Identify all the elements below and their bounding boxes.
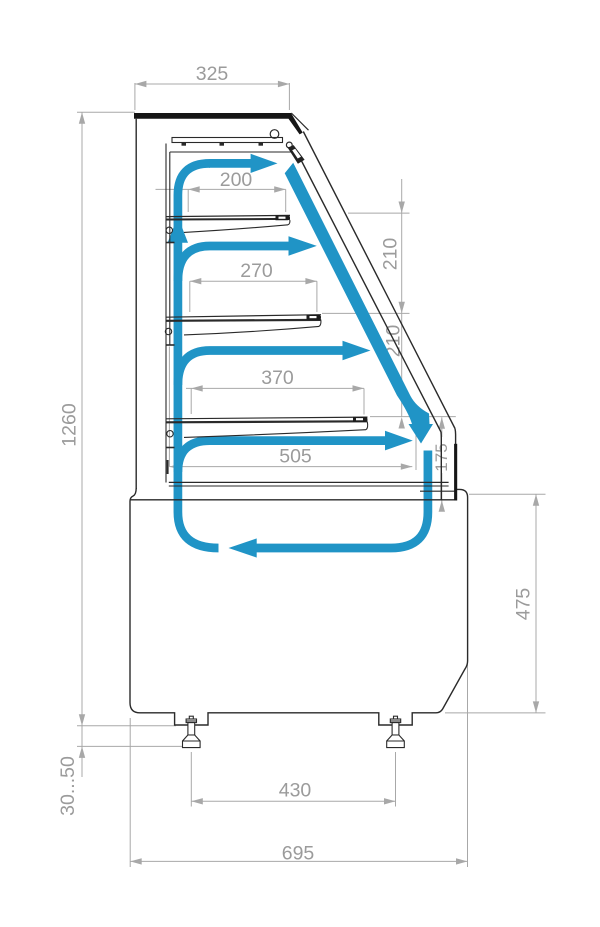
svg-text:1260: 1260 [59, 403, 81, 447]
svg-text:210: 210 [380, 238, 402, 271]
svg-text:475: 475 [513, 588, 535, 621]
svg-text:325: 325 [196, 63, 229, 85]
svg-text:370: 370 [261, 367, 294, 389]
svg-text:695: 695 [282, 843, 315, 865]
svg-text:30...50: 30...50 [57, 756, 79, 816]
svg-text:200: 200 [220, 169, 253, 191]
svg-text:270: 270 [240, 260, 273, 282]
svg-text:430: 430 [279, 780, 312, 802]
svg-text:505: 505 [279, 446, 312, 468]
